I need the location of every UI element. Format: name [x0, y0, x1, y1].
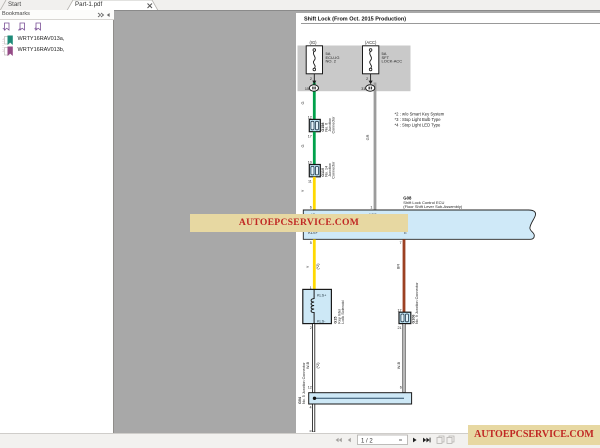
svg-text:G: G [300, 101, 305, 104]
svg-text:NO. 2: NO. 2 [326, 59, 337, 64]
svg-text:Y: Y [305, 265, 310, 268]
svg-text:12: 12 [308, 385, 312, 389]
svg-text:8: 8 [309, 430, 311, 433]
svg-text:Connector: Connector [332, 161, 336, 179]
svg-text:LOCK-ACC: LOCK-ACC [382, 59, 403, 64]
svg-text:Connector: Connector [332, 116, 336, 134]
svg-text:BR: BR [395, 264, 400, 270]
svg-text:(*2): (*2) [316, 363, 320, 369]
svg-text:No. 5 Junction Connector: No. 5 Junction Connector [302, 362, 306, 404]
svg-text:2: 2 [310, 77, 312, 81]
svg-text:2: 2 [310, 326, 312, 330]
svg-text:*3 : Stop Light Bulb Type: *3 : Stop Light Bulb Type [395, 117, 442, 122]
svg-text:(ACC): (ACC) [365, 40, 377, 45]
svg-text:KLS-: KLS- [317, 319, 326, 323]
svg-text:15: 15 [305, 87, 309, 91]
svg-text:G: G [300, 144, 305, 147]
svg-text:1 / 2: 1 / 2 [361, 438, 373, 444]
svg-text:5: 5 [310, 241, 312, 245]
svg-text:No. 9 Junction Connector: No. 9 Junction Connector [415, 282, 419, 324]
svg-text:11: 11 [308, 179, 312, 183]
svg-text:(IG): (IG) [310, 40, 318, 45]
svg-text:7: 7 [400, 241, 402, 245]
svg-text:KLS+: KLS+ [317, 293, 327, 297]
svg-text:6: 6 [400, 385, 402, 389]
svg-text:(*2): (*2) [316, 264, 320, 270]
svg-text:17: 17 [308, 135, 312, 139]
svg-text:1: 1 [370, 205, 372, 209]
svg-text:Shift Lock (From Oct. 2015 Pro: Shift Lock (From Oct. 2015 Production) [304, 16, 406, 22]
svg-text:*2 : w/o Smart Key System: *2 : w/o Smart Key System [395, 112, 445, 117]
svg-text:W-B: W-B [306, 361, 310, 369]
svg-text:Lock Solenoid: Lock Solenoid [341, 300, 345, 323]
svg-text:(Floor Shift Lever Sub-Assembl: (Floor Shift Lever Sub-Assembly) [403, 204, 463, 209]
svg-text:Y: Y [300, 189, 305, 192]
svg-text:*4 : Stop Light LED Type: *4 : Stop Light LED Type [395, 123, 441, 128]
svg-text:W-B: W-B [397, 361, 401, 369]
svg-text:31: 31 [361, 87, 365, 91]
svg-text:4: 4 [309, 406, 311, 410]
svg-text:2: 2 [366, 77, 368, 81]
svg-text:6: 6 [310, 205, 312, 209]
svg-text:GR: GR [365, 134, 370, 140]
svg-text:21: 21 [397, 326, 401, 330]
